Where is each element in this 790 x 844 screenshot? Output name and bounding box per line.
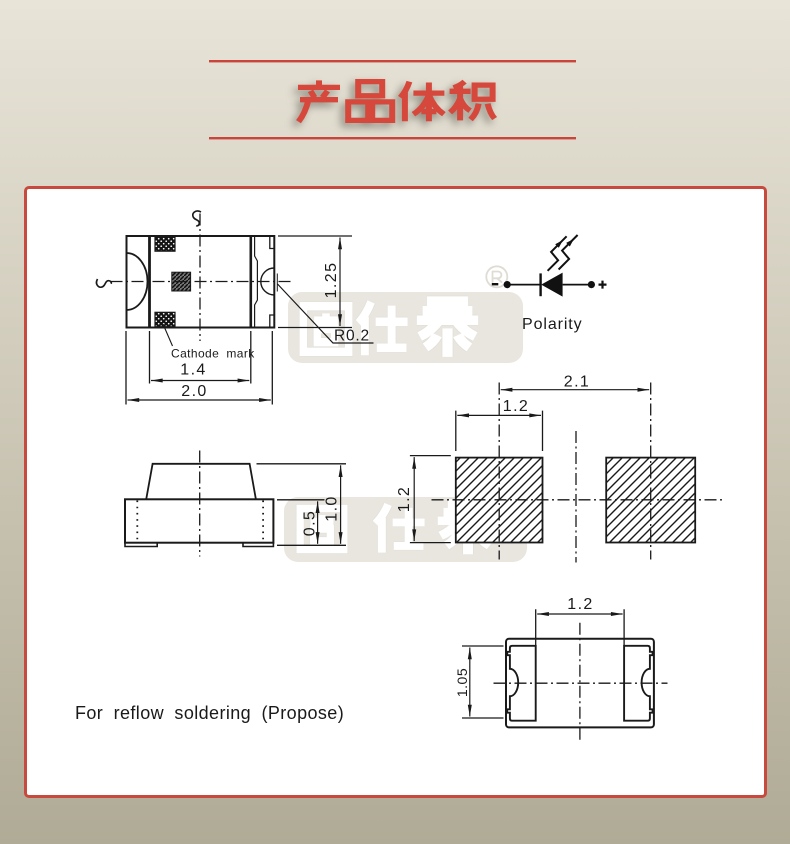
- svg-text:For reflow soldering (Propose): For reflow soldering (Propose): [75, 703, 344, 723]
- svg-text:1.4: 1.4: [180, 362, 206, 379]
- svg-text:1.2: 1.2: [396, 486, 413, 512]
- svg-text:1.05: 1.05: [454, 668, 470, 697]
- svg-text:1.25: 1.25: [323, 262, 340, 299]
- svg-text:1.2: 1.2: [503, 398, 529, 415]
- svg-text:2.0: 2.0: [181, 383, 207, 400]
- svg-text:Polarity: Polarity: [522, 316, 583, 333]
- svg-text:Cathode mark: Cathode mark: [171, 347, 255, 361]
- svg-text:0.5: 0.5: [302, 510, 319, 536]
- svg-text:2.1: 2.1: [564, 373, 590, 390]
- svg-text:R0.2: R0.2: [334, 328, 370, 345]
- svg-text:1.2: 1.2: [567, 596, 593, 613]
- svg-text:1.0: 1.0: [324, 495, 341, 521]
